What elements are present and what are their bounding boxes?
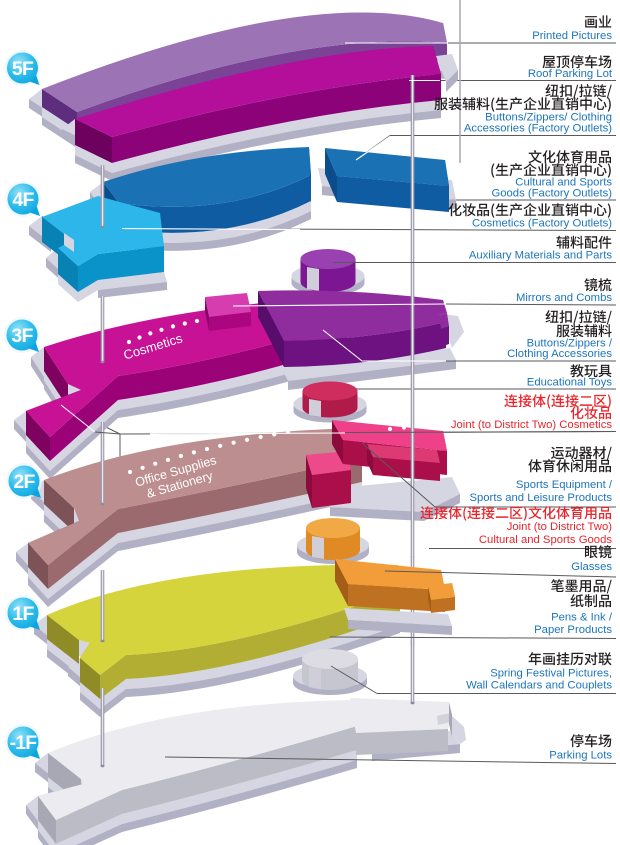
- svg-text:Glasses: Glasses: [571, 561, 612, 573]
- svg-text:Parking Lots: Parking Lots: [549, 750, 612, 762]
- svg-text:Spring Festival Pictures,: Spring Festival Pictures,: [490, 668, 612, 680]
- svg-text:Paper Products: Paper Products: [534, 624, 612, 636]
- svg-text:Cosmetics (Factory Outlets): Cosmetics (Factory Outlets): [472, 218, 612, 230]
- svg-text:5F: 5F: [12, 58, 34, 80]
- svg-text:2F: 2F: [13, 471, 35, 493]
- svg-text:Educational Toys: Educational Toys: [527, 377, 613, 389]
- svg-text:Printed Pictures: Printed Pictures: [532, 30, 612, 42]
- svg-text:Sports Equipment /: Sports Equipment /: [516, 479, 613, 491]
- svg-text:1F: 1F: [12, 603, 34, 625]
- svg-text:Cultural and Sports Goods: Cultural and Sports Goods: [479, 534, 612, 546]
- svg-text:Goods (Factory Outlets): Goods (Factory Outlets): [491, 188, 612, 200]
- svg-text:Pens & Ink /: Pens & Ink /: [551, 612, 613, 624]
- svg-text:Clothing Accessories: Clothing Accessories: [507, 348, 612, 360]
- svg-text:Sports and Leisure Products: Sports and Leisure Products: [469, 492, 612, 504]
- svg-text:Wall Calendars and Couplets: Wall Calendars and Couplets: [466, 680, 612, 692]
- svg-text:Roof Parking Lot: Roof Parking Lot: [528, 68, 613, 80]
- svg-text:Accessories (Factory Outlets): Accessories (Factory Outlets): [464, 123, 612, 135]
- svg-text:4F: 4F: [12, 189, 34, 211]
- svg-text:-1F: -1F: [10, 732, 38, 754]
- svg-text:Auxiliary Materials and Parts: Auxiliary Materials and Parts: [469, 250, 612, 262]
- svg-text:Mirrors and Combs: Mirrors and Combs: [516, 292, 612, 304]
- svg-text:3F: 3F: [11, 325, 33, 347]
- svg-text:Joint (to District Two): Joint (to District Two): [507, 521, 612, 533]
- svg-text:Joint (to District Two) Cosmet: Joint (to District Two) Cosmetics: [451, 419, 612, 431]
